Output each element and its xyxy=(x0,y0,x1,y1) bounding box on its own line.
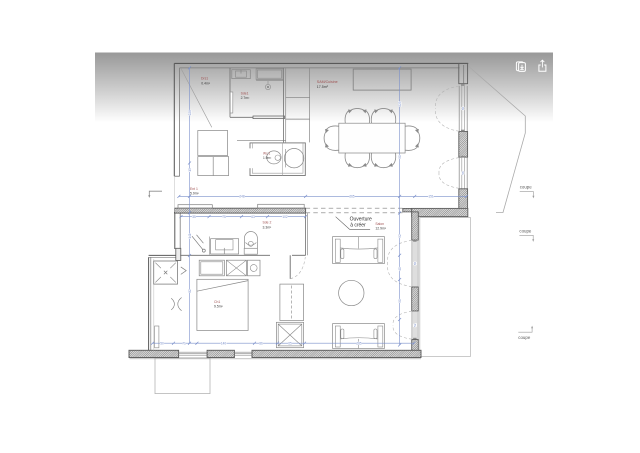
svg-text:35: 35 xyxy=(192,215,196,219)
svg-text:52: 52 xyxy=(413,323,417,327)
svg-text:coupe: coupe xyxy=(519,228,532,233)
svg-text:75: 75 xyxy=(222,215,226,219)
svg-text:265: 265 xyxy=(349,195,355,199)
svg-text:86: 86 xyxy=(461,107,465,111)
svg-text:58: 58 xyxy=(461,171,465,175)
svg-text:86: 86 xyxy=(259,342,263,346)
svg-text:50: 50 xyxy=(160,342,164,346)
svg-text:151: 151 xyxy=(428,195,434,199)
svg-text:248: 248 xyxy=(239,195,245,199)
svg-text:40: 40 xyxy=(398,267,402,271)
svg-text:86: 86 xyxy=(413,262,417,266)
svg-text:90: 90 xyxy=(398,155,402,159)
svg-text:Drs1: Drs1 xyxy=(201,77,208,81)
svg-text:228: 228 xyxy=(188,110,192,116)
svg-text:Ch1: Ch1 xyxy=(214,300,220,304)
svg-text:coupe: coupe xyxy=(520,184,533,189)
svg-text:0.4m²: 0.4m² xyxy=(201,81,211,85)
svg-text:225: 225 xyxy=(398,101,402,107)
svg-text:141: 141 xyxy=(188,233,192,239)
svg-text:92: 92 xyxy=(398,234,402,238)
svg-text:285: 285 xyxy=(356,342,362,346)
svg-text:5.9m²: 5.9m² xyxy=(190,191,200,195)
svg-text:90: 90 xyxy=(398,299,402,303)
svg-text:82: 82 xyxy=(188,289,192,293)
svg-text:Ent 1: Ent 1 xyxy=(190,187,198,191)
svg-text:à créer: à créer xyxy=(350,223,366,229)
svg-text:1.9m²: 1.9m² xyxy=(263,156,271,160)
svg-text:13: 13 xyxy=(188,168,192,172)
svg-text:140: 140 xyxy=(221,342,227,346)
svg-text:65: 65 xyxy=(288,342,292,346)
svg-text:3.3m²: 3.3m² xyxy=(263,225,273,229)
svg-text:2.7m²: 2.7m² xyxy=(241,96,251,100)
svg-text:9.5m²: 9.5m² xyxy=(214,305,224,309)
svg-text:63: 63 xyxy=(251,215,255,219)
svg-text:Salon: Salon xyxy=(375,222,384,226)
svg-text:Sde1: Sde1 xyxy=(241,92,249,96)
svg-text:SAM/Cuisine: SAM/Cuisine xyxy=(317,80,338,84)
svg-text:12.9m²: 12.9m² xyxy=(375,227,386,231)
svg-text:coupe: coupe xyxy=(518,335,531,340)
svg-text:17.5m²: 17.5m² xyxy=(317,85,329,89)
svg-text:102: 102 xyxy=(282,215,288,219)
svg-text:Sde 2: Sde 2 xyxy=(263,221,272,225)
svg-text:71: 71 xyxy=(182,342,186,346)
